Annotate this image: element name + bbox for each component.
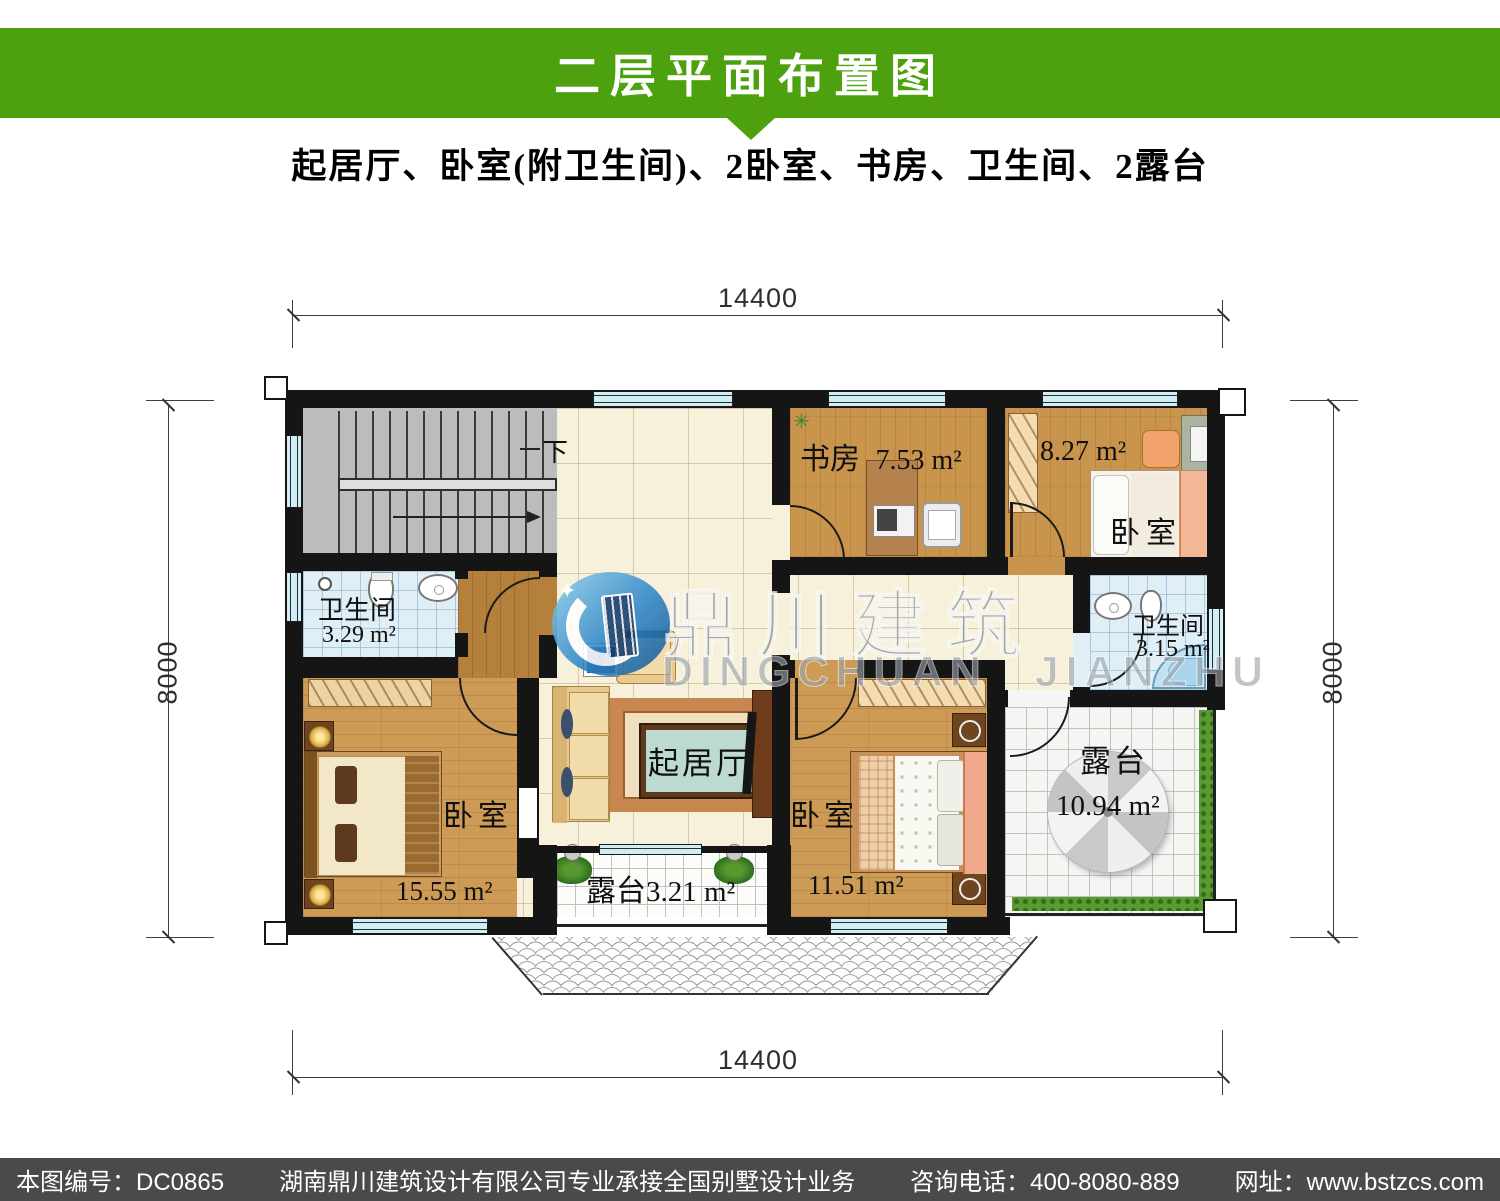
office-chair — [922, 502, 962, 548]
plant: ✳ — [793, 412, 813, 432]
bath-right-area: 3.15 m² — [1136, 636, 1210, 663]
bath-left-area: 3.29 m² — [322, 622, 396, 649]
stair-down-label: 下 — [542, 432, 568, 469]
bedroom-top-right-name: 卧室 — [1110, 508, 1182, 552]
column-top-left — [264, 376, 288, 400]
bedroom-left-name: 卧室 — [443, 791, 513, 835]
sofa — [552, 686, 610, 822]
footer-company: 湖南鼎川建筑设计有限公司专业承接全国别墅设计业务 — [279, 1162, 855, 1197]
porch-roof — [493, 937, 1038, 995]
window-stair-left — [286, 435, 302, 508]
watermark-logo: ✦ — [552, 572, 670, 676]
nightstand — [304, 721, 334, 751]
bedroom-bottom-name: 卧室 — [790, 791, 858, 835]
footer-drawing-id: 本图编号：DC0865 — [16, 1162, 224, 1197]
dim-right-value: 8000 — [1318, 623, 1349, 723]
nightstand — [304, 879, 334, 909]
plan-subtitle: 起居厅、卧室(附卫生间)、2卧室、书房、卫生间、2露台 — [0, 138, 1500, 189]
hedge-right — [1199, 710, 1213, 910]
double-bed — [850, 751, 990, 873]
closet — [1008, 413, 1038, 513]
living-name: 起居厅 — [648, 738, 750, 783]
window-terrace-small — [599, 844, 702, 855]
sink — [1094, 592, 1132, 620]
footer-website: 网址：www.bstzcs.com — [1235, 1162, 1484, 1197]
window-bath-left — [286, 572, 302, 622]
tv-cabinet — [752, 690, 773, 818]
header-pointer — [727, 118, 775, 140]
nightstand — [952, 713, 986, 747]
dim-left-value: 8000 — [153, 623, 184, 723]
dim-top-value: 14400 — [293, 283, 1223, 314]
terrace-large-name: 露台 — [1080, 736, 1148, 781]
bedroom-top-right-area: 8.27 m² — [1040, 436, 1126, 468]
hedge-bottom — [1012, 897, 1208, 911]
footer-bar: 本图编号：DC0865 湖南鼎川建筑设计有限公司专业承接全国别墅设计业务 咨询电… — [0, 1158, 1500, 1201]
window-bedroom-tr-top — [1042, 391, 1178, 407]
window-bedroom-bottom-bottom — [830, 918, 948, 934]
shower-head — [318, 577, 332, 591]
room-name: 书房 — [800, 443, 860, 476]
terrace-large-edge-bottom — [1005, 913, 1216, 916]
double-bed — [304, 751, 442, 877]
room-area: 3.21 m² — [646, 876, 735, 908]
bedroom-bottom-area: 11.51 m² — [808, 870, 904, 901]
room-area: 7.53 m² — [876, 445, 962, 476]
stairwell — [303, 408, 557, 553]
header-bar: 二层平面布置图 — [0, 28, 1500, 118]
column-terrace-corner — [1203, 899, 1237, 933]
page-title: 二层平面布置图 — [554, 40, 946, 106]
bedroom-left-area: 15.55 m² — [396, 876, 493, 907]
sink — [418, 574, 458, 602]
stair-down-tick — [520, 448, 540, 450]
window-bedroom-left-bottom — [352, 918, 488, 934]
room-name: 露台 — [586, 875, 646, 908]
wardrobe — [308, 679, 432, 707]
chair — [1142, 430, 1180, 468]
nightstand — [952, 871, 986, 905]
terrace-small-rail — [557, 924, 767, 927]
terrace-large-area: 10.94 m² — [1056, 790, 1160, 823]
floor-plan-page: 二层平面布置图 起居厅、卧室(附卫生间)、2卧室、书房、卫生间、2露台 1440… — [0, 0, 1500, 1201]
window-hall-top — [593, 391, 733, 407]
footer-phone: 咨询电话：400-8080-889 — [910, 1162, 1179, 1197]
window-study-top — [828, 391, 946, 407]
study-label: 书房 7.53 m² — [800, 434, 962, 478]
terrace-large-edge-right — [1213, 707, 1216, 916]
porch-roof-bottom-edge — [543, 993, 989, 995]
dim-bottom-value: 14400 — [293, 1045, 1223, 1076]
column-top-right — [1218, 388, 1246, 416]
column-bottom-left — [264, 921, 288, 945]
terrace-small-label: 露台3.21 m² — [586, 866, 735, 910]
